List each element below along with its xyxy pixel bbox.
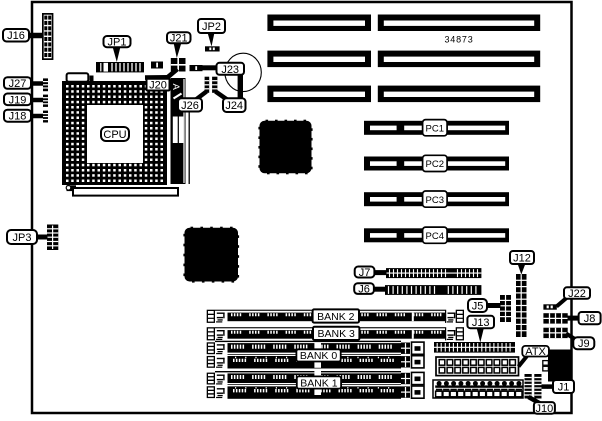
svg-text:J23: J23 [221, 64, 239, 76]
svg-text:PC2: PC2 [426, 159, 444, 170]
svg-text:J8: J8 [584, 313, 596, 325]
svg-text:J19: J19 [9, 94, 27, 106]
svg-text:J6: J6 [358, 284, 370, 296]
svg-text:JP1: JP1 [108, 37, 127, 49]
svg-text:PC4: PC4 [426, 231, 444, 242]
svg-text:J22: J22 [568, 288, 586, 300]
svg-text:J5: J5 [472, 301, 484, 313]
svg-text:J10: J10 [536, 403, 554, 415]
svg-text:J24: J24 [225, 100, 243, 112]
svg-text:J20: J20 [149, 80, 167, 92]
svg-text:A: A [170, 84, 181, 91]
svg-text:JP2: JP2 [202, 21, 221, 33]
svg-text:J12: J12 [513, 253, 531, 265]
svg-text:PC3: PC3 [426, 195, 444, 206]
svg-text:J27: J27 [9, 78, 27, 90]
svg-text:J26: J26 [181, 100, 199, 112]
svg-text:J21: J21 [170, 33, 188, 45]
svg-text:ATX: ATX [525, 346, 546, 358]
svg-text:J18: J18 [9, 111, 27, 123]
svg-text:BANK 3: BANK 3 [318, 328, 356, 340]
svg-text:J9: J9 [578, 338, 590, 350]
svg-text:J16: J16 [7, 30, 25, 42]
svg-text:J7: J7 [359, 267, 371, 279]
svg-text:BANK 0: BANK 0 [300, 350, 338, 362]
svg-text:BANK 2: BANK 2 [317, 311, 355, 323]
svg-text:JP3: JP3 [13, 232, 32, 244]
svg-text:J13: J13 [472, 317, 490, 329]
svg-text:PC1: PC1 [426, 123, 444, 134]
svg-text:J1: J1 [558, 382, 570, 394]
svg-text:34873: 34873 [444, 35, 473, 45]
svg-text:CPU: CPU [103, 129, 126, 141]
svg-text:BANK 1: BANK 1 [300, 377, 338, 389]
